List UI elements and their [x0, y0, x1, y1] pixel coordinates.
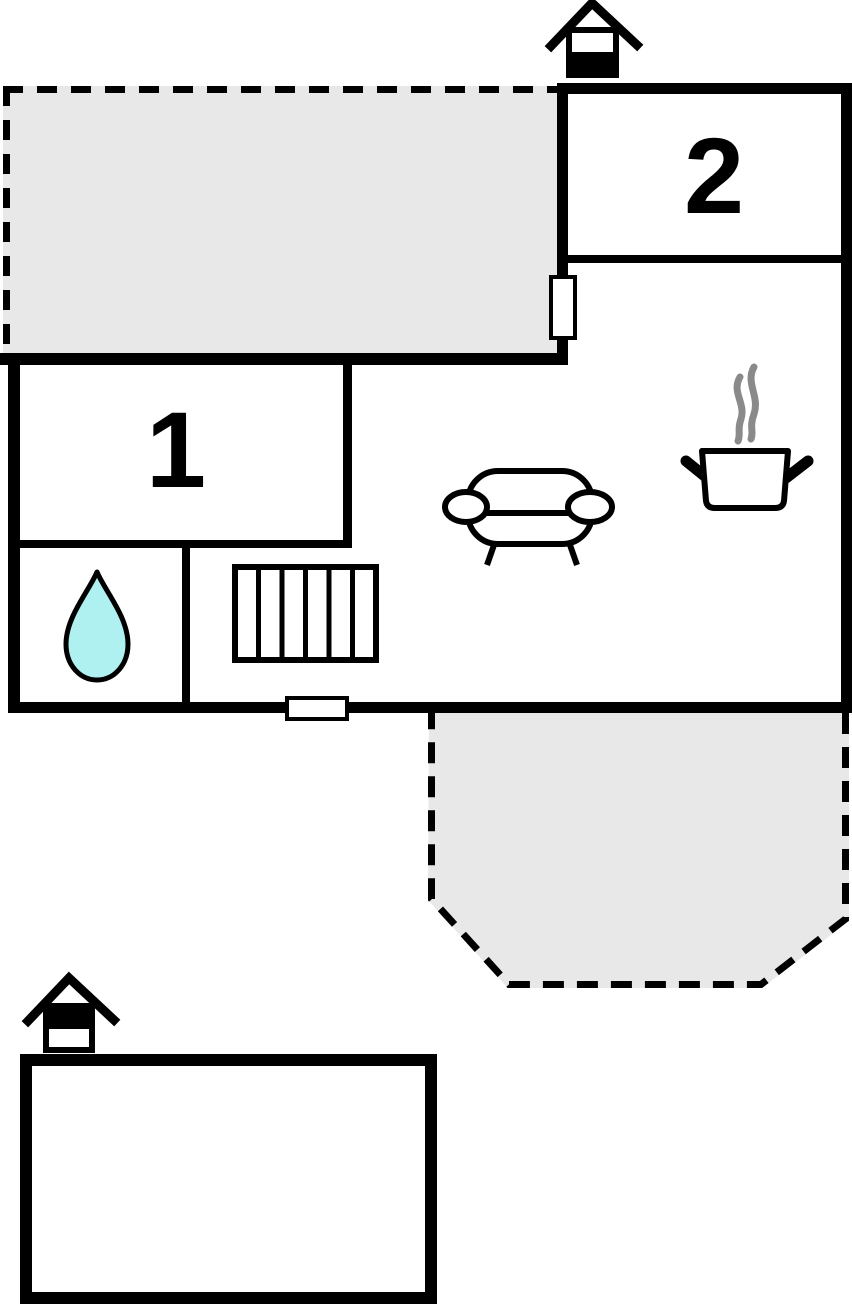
wall-bottom	[8, 702, 852, 713]
room-1-label: 1	[146, 389, 206, 510]
wall-room1-bottom	[8, 540, 352, 548]
chimney-icon-top	[551, 3, 637, 78]
steam-icon	[751, 367, 755, 439]
wall-left	[8, 353, 20, 713]
wall-bathroom-right	[182, 548, 190, 702]
floor-plan-canvas: 1 2	[0, 0, 852, 1304]
terrace-top	[3, 86, 560, 353]
terrace-bottom	[428, 706, 849, 988]
chimney-icon-outbuilding	[28, 978, 114, 1050]
outbuilding	[26, 1060, 431, 1298]
sofa-icon	[445, 471, 612, 565]
door-icon	[287, 698, 347, 719]
wall-room2-bottom	[557, 255, 852, 263]
pot-body	[702, 451, 788, 508]
terrace-top-fill	[3, 86, 558, 353]
stairs-icon	[235, 567, 376, 660]
terrace-bottom-fill	[428, 706, 849, 988]
wall-room1-right	[343, 357, 352, 547]
room-2-label: 2	[684, 115, 744, 236]
window-icon	[551, 277, 575, 338]
wall-terrace-bottom	[0, 353, 568, 365]
wall-top	[560, 83, 852, 94]
floor-plan: 1 2	[0, 0, 852, 1304]
cooking-pot-icon	[686, 367, 808, 508]
wall-right	[841, 83, 852, 713]
steam-icon	[737, 377, 742, 441]
water-drop-icon	[66, 572, 128, 680]
